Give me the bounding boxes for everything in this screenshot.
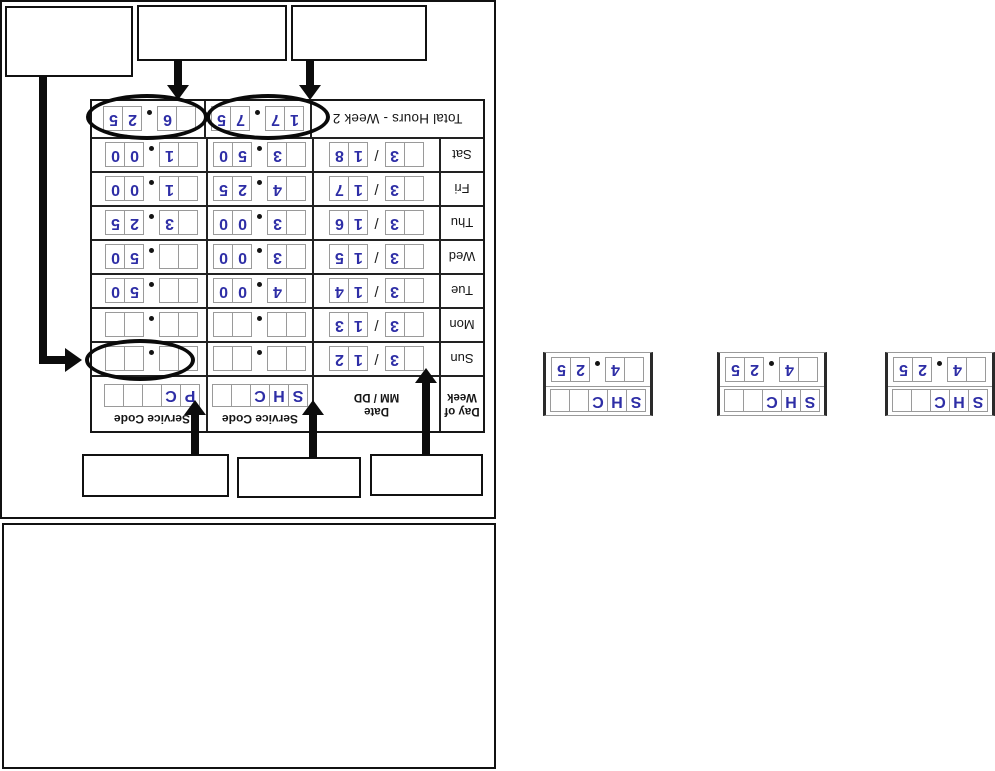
- digit-box: 3: [329, 313, 349, 338]
- digit-box: [268, 313, 288, 338]
- pc-hours-cell: [98, 309, 206, 341]
- digit-box: 3: [385, 245, 405, 270]
- digit-box: [799, 357, 819, 382]
- day-label: Tue: [451, 284, 473, 299]
- digit-box: 1: [348, 279, 368, 304]
- code-box: [212, 384, 232, 407]
- digit-box: [287, 177, 307, 202]
- arrow-elbow-icon: [39, 356, 66, 364]
- example-table: SHC 4 25: [885, 352, 995, 416]
- code-box: [123, 384, 143, 407]
- digit-box: [967, 357, 987, 382]
- decimal-point: [258, 317, 263, 322]
- digit-box: 1: [348, 347, 368, 372]
- decimal-point: [150, 317, 155, 322]
- digit-box: 0: [106, 177, 126, 202]
- day-cell: Sun: [439, 343, 483, 375]
- pc-hours-cell: 1 00: [98, 139, 206, 171]
- code-box: S: [968, 390, 988, 413]
- digit-box: 5: [233, 143, 253, 168]
- digit-box: 2: [913, 357, 933, 382]
- example-hours-row: 4 25: [546, 353, 650, 386]
- code-box: [911, 390, 931, 413]
- digit-box: 3: [268, 143, 288, 168]
- decimal-point: [150, 283, 155, 288]
- digit-box: 3: [268, 245, 288, 270]
- digit-box: 0: [106, 245, 126, 270]
- digit-box: 2: [125, 211, 145, 236]
- code-box: [142, 384, 162, 407]
- date-cell: 3 / 13: [312, 309, 439, 341]
- code-box: H: [781, 390, 801, 413]
- table-row: Mon 3 / 13: [92, 307, 483, 341]
- decimal-point: [770, 361, 775, 366]
- digit-box: 6: [329, 211, 349, 236]
- code-box: [104, 384, 124, 407]
- day-cell: Tue: [439, 275, 483, 307]
- date-slash: /: [374, 215, 378, 232]
- date-slash: /: [374, 351, 378, 368]
- pc-hours-cell: 1 00: [98, 173, 206, 205]
- digit-box: 5: [726, 357, 746, 382]
- decimal-point: [258, 249, 263, 254]
- example-code-row: SHC: [720, 386, 824, 415]
- decimal-point: [150, 181, 155, 186]
- digit-box: 3: [385, 143, 405, 168]
- arrow-down-icon: [174, 60, 182, 87]
- decimal-point: [150, 249, 155, 254]
- digit-box: 1: [348, 177, 368, 202]
- code-box: [550, 390, 570, 413]
- decimal-point: [150, 147, 155, 152]
- digit-box: [287, 313, 307, 338]
- digit-box: [160, 279, 180, 304]
- day-label: Sun: [450, 352, 473, 367]
- code-box: [724, 390, 744, 413]
- code-box: C: [250, 384, 270, 407]
- decimal-point: [596, 361, 601, 366]
- digit-box: 0: [214, 211, 234, 236]
- table-row: Sat 3 / 18 3 50 1 00: [92, 137, 483, 171]
- date-slash: /: [374, 283, 378, 300]
- shc-code-boxes: SHC: [212, 384, 308, 407]
- code-box: [231, 384, 251, 407]
- shc-hours-cell: 3 00: [206, 207, 312, 239]
- digit-box: 4: [329, 279, 349, 304]
- example-hours-row: 4 25: [888, 353, 992, 386]
- digit-box: 3: [385, 211, 405, 236]
- example-table: SHC 4 25: [543, 352, 653, 416]
- callout-box-bottom-left: [82, 454, 229, 497]
- day-of-week-header: Day of Week: [439, 377, 483, 431]
- total-label: Total Hours - Week 2: [310, 101, 483, 137]
- service-code-label: Service Code: [114, 411, 190, 426]
- digit-box: [179, 279, 199, 304]
- code-box: C: [161, 384, 181, 407]
- table-row: Tue 3 / 14 4 00 50: [92, 273, 483, 307]
- decimal-point: [258, 215, 263, 220]
- empty-notes-panel: [2, 523, 496, 769]
- date-cell: 3 / 18: [312, 139, 439, 171]
- digit-box: 1: [348, 143, 368, 168]
- digit-box: [287, 347, 307, 372]
- shc-hours-cell: 4 00: [206, 275, 312, 307]
- code-box: [743, 390, 763, 413]
- digit-box: [179, 177, 199, 202]
- pc-hours-cell: 50: [98, 241, 206, 273]
- digit-box: [179, 245, 199, 270]
- digit-box: 5: [125, 279, 145, 304]
- shc-hours-cell: [206, 309, 312, 341]
- date-cell: 3 / 14: [312, 275, 439, 307]
- decimal-point: [258, 147, 263, 152]
- digit-box: 1: [160, 143, 180, 168]
- example-code-row: SHC: [888, 386, 992, 415]
- shc-hours-cell: 3 00: [206, 241, 312, 273]
- digit-box: [287, 279, 307, 304]
- timesheet-annotation-panel: Day of Week Date MM / DD Service Code SH…: [0, 0, 496, 519]
- digit-box: 4: [268, 177, 288, 202]
- digit-box: [287, 143, 307, 168]
- day-label: Wed: [449, 250, 476, 265]
- callout-box-bottom-right: [370, 454, 483, 496]
- digit-box: 0: [125, 177, 145, 202]
- day-cell: Thu: [439, 207, 483, 239]
- digit-box: [179, 211, 199, 236]
- digit-box: [125, 313, 145, 338]
- shc-hours-cell: 3 50: [206, 139, 312, 171]
- date-header: Date MM / DD: [312, 377, 439, 431]
- digit-box: [179, 143, 199, 168]
- digit-box: [404, 211, 424, 236]
- digit-box: 4: [268, 279, 288, 304]
- digit-box: [625, 357, 645, 382]
- digit-box: 0: [106, 279, 126, 304]
- code-box: [892, 390, 912, 413]
- service-code-shc-header: Service Code SHC: [206, 377, 312, 431]
- digit-box: 1: [348, 211, 368, 236]
- pc-hours-cell: 50: [98, 275, 206, 307]
- date-slash: /: [374, 181, 378, 198]
- date-cell: 3 / 16: [312, 207, 439, 239]
- arrow-up-icon: [422, 381, 430, 455]
- code-box: H: [269, 384, 289, 407]
- digit-box: 0: [106, 143, 126, 168]
- digit-box: [404, 313, 424, 338]
- arrow-right-icon: [65, 348, 82, 372]
- highlight-ellipse-blank-cell: [85, 339, 195, 381]
- digit-box: [160, 245, 180, 270]
- code-box: H: [949, 390, 969, 413]
- digit-box: 0: [214, 143, 234, 168]
- digit-box: [404, 279, 424, 304]
- date-slash: /: [374, 147, 378, 164]
- code-box: [569, 390, 589, 413]
- digit-box: [404, 245, 424, 270]
- pc-hours-cell: 3 25: [98, 207, 206, 239]
- digit-box: 4: [780, 357, 800, 382]
- callout-box-top-right: [291, 5, 427, 61]
- date-slash: /: [374, 249, 378, 266]
- digit-box: [179, 313, 199, 338]
- digit-box: 0: [125, 143, 145, 168]
- digit-box: [287, 211, 307, 236]
- digit-box: 3: [385, 279, 405, 304]
- digit-box: [214, 347, 234, 372]
- digit-box: [287, 245, 307, 270]
- service-code-example-1: SHC 4 25: [543, 352, 653, 416]
- digit-box: 0: [214, 245, 234, 270]
- digit-box: 4: [948, 357, 968, 382]
- day-cell: Sat: [439, 139, 483, 171]
- digit-box: 5: [125, 245, 145, 270]
- digit-box: [404, 143, 424, 168]
- code-box: H: [607, 390, 627, 413]
- date-cell: 3 / 17: [312, 173, 439, 205]
- digit-box: 1: [160, 177, 180, 202]
- example-code-row: SHC: [546, 386, 650, 415]
- date-cell: 3 / 15: [312, 241, 439, 273]
- digit-box: 5: [214, 177, 234, 202]
- digit-box: [106, 313, 126, 338]
- code-box: C: [762, 390, 782, 413]
- date-slash: /: [374, 317, 378, 334]
- arrow-up-icon: [309, 413, 317, 458]
- table-row: Thu 3 / 16 3 00 3 25: [92, 205, 483, 239]
- shc-hours-cell: 4 25: [206, 173, 312, 205]
- digit-box: 3: [268, 211, 288, 236]
- digit-box: 3: [385, 177, 405, 202]
- digit-box: 8: [329, 143, 349, 168]
- digit-box: 5: [552, 357, 572, 382]
- digit-box: [404, 177, 424, 202]
- decimal-point: [258, 351, 263, 356]
- digit-box: 4: [606, 357, 626, 382]
- digit-box: 5: [106, 211, 126, 236]
- digit-box: [268, 347, 288, 372]
- digit-box: [160, 313, 180, 338]
- decimal-point: [258, 181, 263, 186]
- digit-box: 0: [214, 279, 234, 304]
- day-label: Mon: [449, 318, 474, 333]
- callout-box-top-middle: [137, 5, 287, 61]
- day-label: Sat: [452, 148, 472, 163]
- digit-box: 0: [233, 245, 253, 270]
- table-row: Wed 3 / 15 3 00 50: [92, 239, 483, 273]
- digit-box: 1: [348, 245, 368, 270]
- code-box: S: [626, 390, 646, 413]
- digit-box: 2: [329, 347, 349, 372]
- arrow-up-icon: [191, 413, 199, 455]
- service-code-example-3: SHC 4 25: [885, 352, 995, 416]
- digit-box: 1: [348, 313, 368, 338]
- digit-box: 3: [160, 211, 180, 236]
- digit-box: 3: [385, 347, 405, 372]
- digit-box: [233, 347, 253, 372]
- digit-box: 2: [745, 357, 765, 382]
- service-code-label: Service Code: [222, 411, 298, 426]
- day-cell: Wed: [439, 241, 483, 273]
- example-table: SHC 4 25: [717, 352, 827, 416]
- arrow-down-icon: [306, 60, 314, 87]
- code-box: C: [588, 390, 608, 413]
- digit-box: 7: [329, 177, 349, 202]
- digit-box: 5: [329, 245, 349, 270]
- decimal-point: [938, 361, 943, 366]
- decimal-point: [150, 215, 155, 220]
- decimal-point: [258, 283, 263, 288]
- highlight-ellipse-pc-total: [86, 94, 208, 140]
- callout-box-top-left: [5, 6, 133, 77]
- document-page: Day of Week Date MM / DD Service Code SH…: [0, 0, 995, 771]
- day-label: Fri: [454, 182, 469, 197]
- digit-box: [233, 313, 253, 338]
- day-cell: Mon: [439, 309, 483, 341]
- digit-box: [214, 313, 234, 338]
- code-box: C: [930, 390, 950, 413]
- arrow-elbow-icon: [39, 76, 47, 364]
- digit-box: 2: [233, 177, 253, 202]
- digit-box: 0: [233, 211, 253, 236]
- digit-box: 2: [571, 357, 591, 382]
- code-box: S: [800, 390, 820, 413]
- digit-box: 5: [894, 357, 914, 382]
- day-label: Thu: [451, 216, 473, 231]
- shc-hours-cell: [206, 343, 312, 375]
- callout-box-bottom-middle: [237, 457, 361, 498]
- table-row: Fri 3 / 17 4 25 1 00: [92, 171, 483, 205]
- digit-box: 0: [233, 279, 253, 304]
- day-cell: Fri: [439, 173, 483, 205]
- example-hours-row: 4 25: [720, 353, 824, 386]
- digit-box: 3: [385, 313, 405, 338]
- service-code-example-2: SHC 4 25: [717, 352, 827, 416]
- highlight-ellipse-shc-total: [206, 94, 330, 140]
